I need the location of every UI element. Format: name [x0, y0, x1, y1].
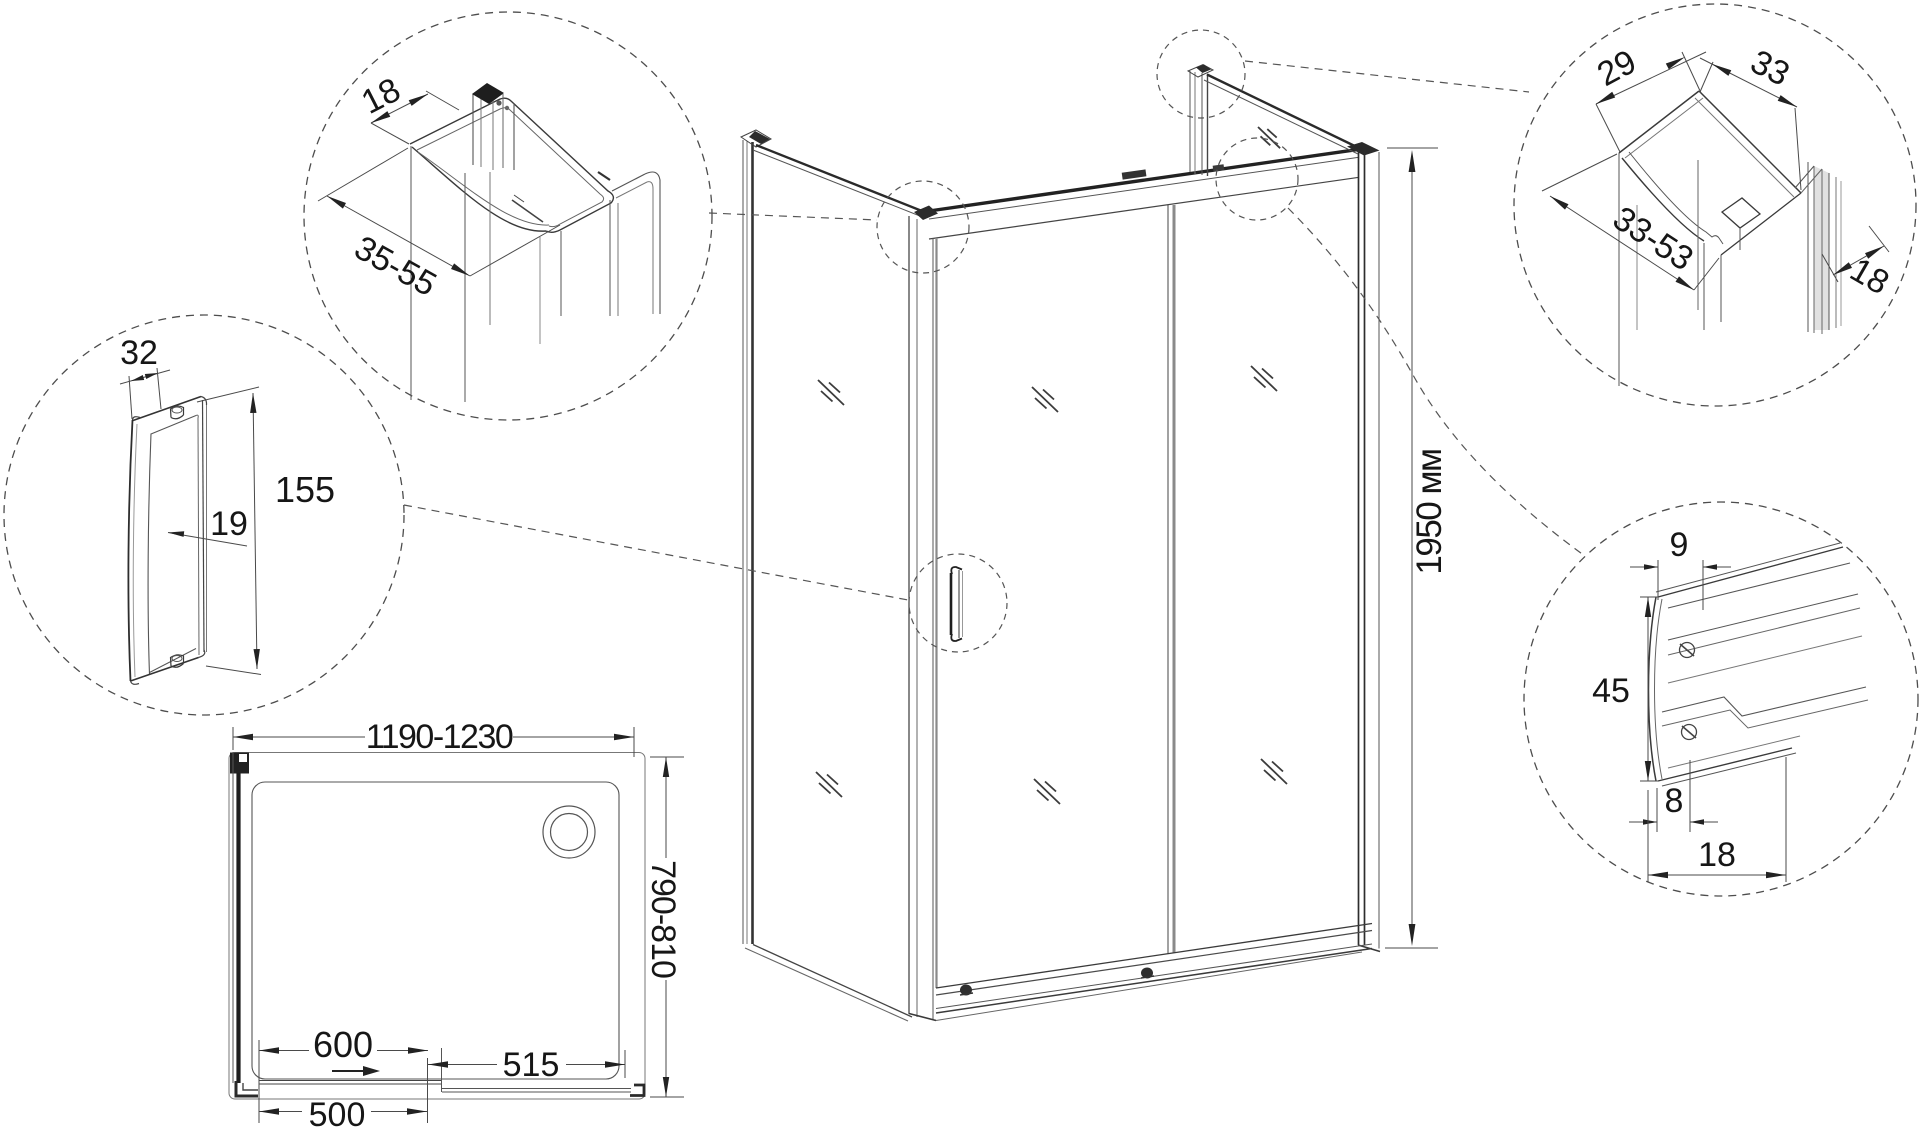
svg-text:9: 9: [1670, 526, 1689, 564]
svg-text:600: 600: [313, 1024, 373, 1065]
svg-text:155: 155: [275, 469, 335, 510]
svg-text:18: 18: [1698, 836, 1736, 874]
svg-text:1950 мм: 1950 мм: [1410, 449, 1449, 574]
svg-text:515: 515: [503, 1046, 560, 1084]
svg-text:1190-1230: 1190-1230: [366, 718, 513, 756]
svg-text:8: 8: [1665, 782, 1684, 820]
svg-text:32: 32: [120, 334, 158, 372]
svg-text:19: 19: [210, 505, 248, 543]
svg-text:500: 500: [309, 1096, 366, 1128]
svg-text:45: 45: [1592, 672, 1630, 710]
svg-text:790-810: 790-810: [644, 860, 682, 978]
